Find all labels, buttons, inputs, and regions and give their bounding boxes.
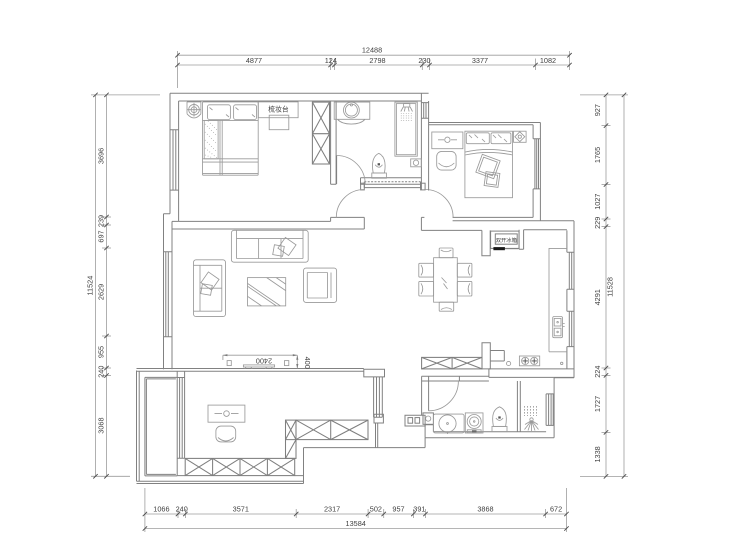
svg-text:2400: 2400 bbox=[256, 356, 272, 365]
svg-text:12488: 12488 bbox=[362, 46, 382, 55]
svg-text:240: 240 bbox=[176, 505, 188, 514]
svg-text:1082: 1082 bbox=[540, 56, 556, 65]
svg-text:1027: 1027 bbox=[593, 194, 602, 210]
svg-text:2317: 2317 bbox=[324, 505, 340, 514]
svg-text:梳妆台: 梳妆台 bbox=[268, 105, 289, 114]
svg-text:239: 239 bbox=[96, 215, 105, 227]
svg-text:双开冰箱: 双开冰箱 bbox=[496, 236, 518, 244]
svg-text:229: 229 bbox=[593, 217, 602, 229]
svg-text:502: 502 bbox=[370, 505, 382, 514]
svg-text:957: 957 bbox=[392, 505, 404, 514]
svg-text:1066: 1066 bbox=[153, 505, 169, 514]
svg-text:1727: 1727 bbox=[593, 396, 602, 412]
svg-text:11524: 11524 bbox=[86, 276, 95, 296]
svg-text:4291: 4291 bbox=[593, 289, 602, 305]
svg-text:230: 230 bbox=[418, 56, 430, 65]
svg-text:3868: 3868 bbox=[477, 505, 493, 514]
svg-text:1338: 1338 bbox=[593, 446, 602, 462]
svg-text:400: 400 bbox=[303, 357, 312, 369]
svg-text:1765: 1765 bbox=[593, 147, 602, 163]
svg-text:955: 955 bbox=[96, 346, 105, 358]
svg-text:2798: 2798 bbox=[369, 56, 385, 65]
svg-text:124: 124 bbox=[325, 56, 337, 65]
svg-text:3068: 3068 bbox=[96, 417, 105, 433]
svg-text:391: 391 bbox=[413, 505, 425, 514]
svg-text:672: 672 bbox=[550, 505, 562, 514]
svg-text:240: 240 bbox=[96, 366, 105, 378]
svg-text:3571: 3571 bbox=[233, 505, 249, 514]
svg-text:11528: 11528 bbox=[605, 277, 614, 297]
svg-text:2629: 2629 bbox=[96, 284, 105, 300]
svg-text:4877: 4877 bbox=[246, 56, 262, 65]
svg-text:13584: 13584 bbox=[346, 519, 366, 528]
svg-text:927: 927 bbox=[593, 104, 602, 116]
svg-text:3696: 3696 bbox=[96, 148, 105, 164]
svg-text:697: 697 bbox=[96, 230, 105, 242]
svg-text:224: 224 bbox=[593, 366, 602, 378]
svg-text:3377: 3377 bbox=[472, 56, 488, 65]
